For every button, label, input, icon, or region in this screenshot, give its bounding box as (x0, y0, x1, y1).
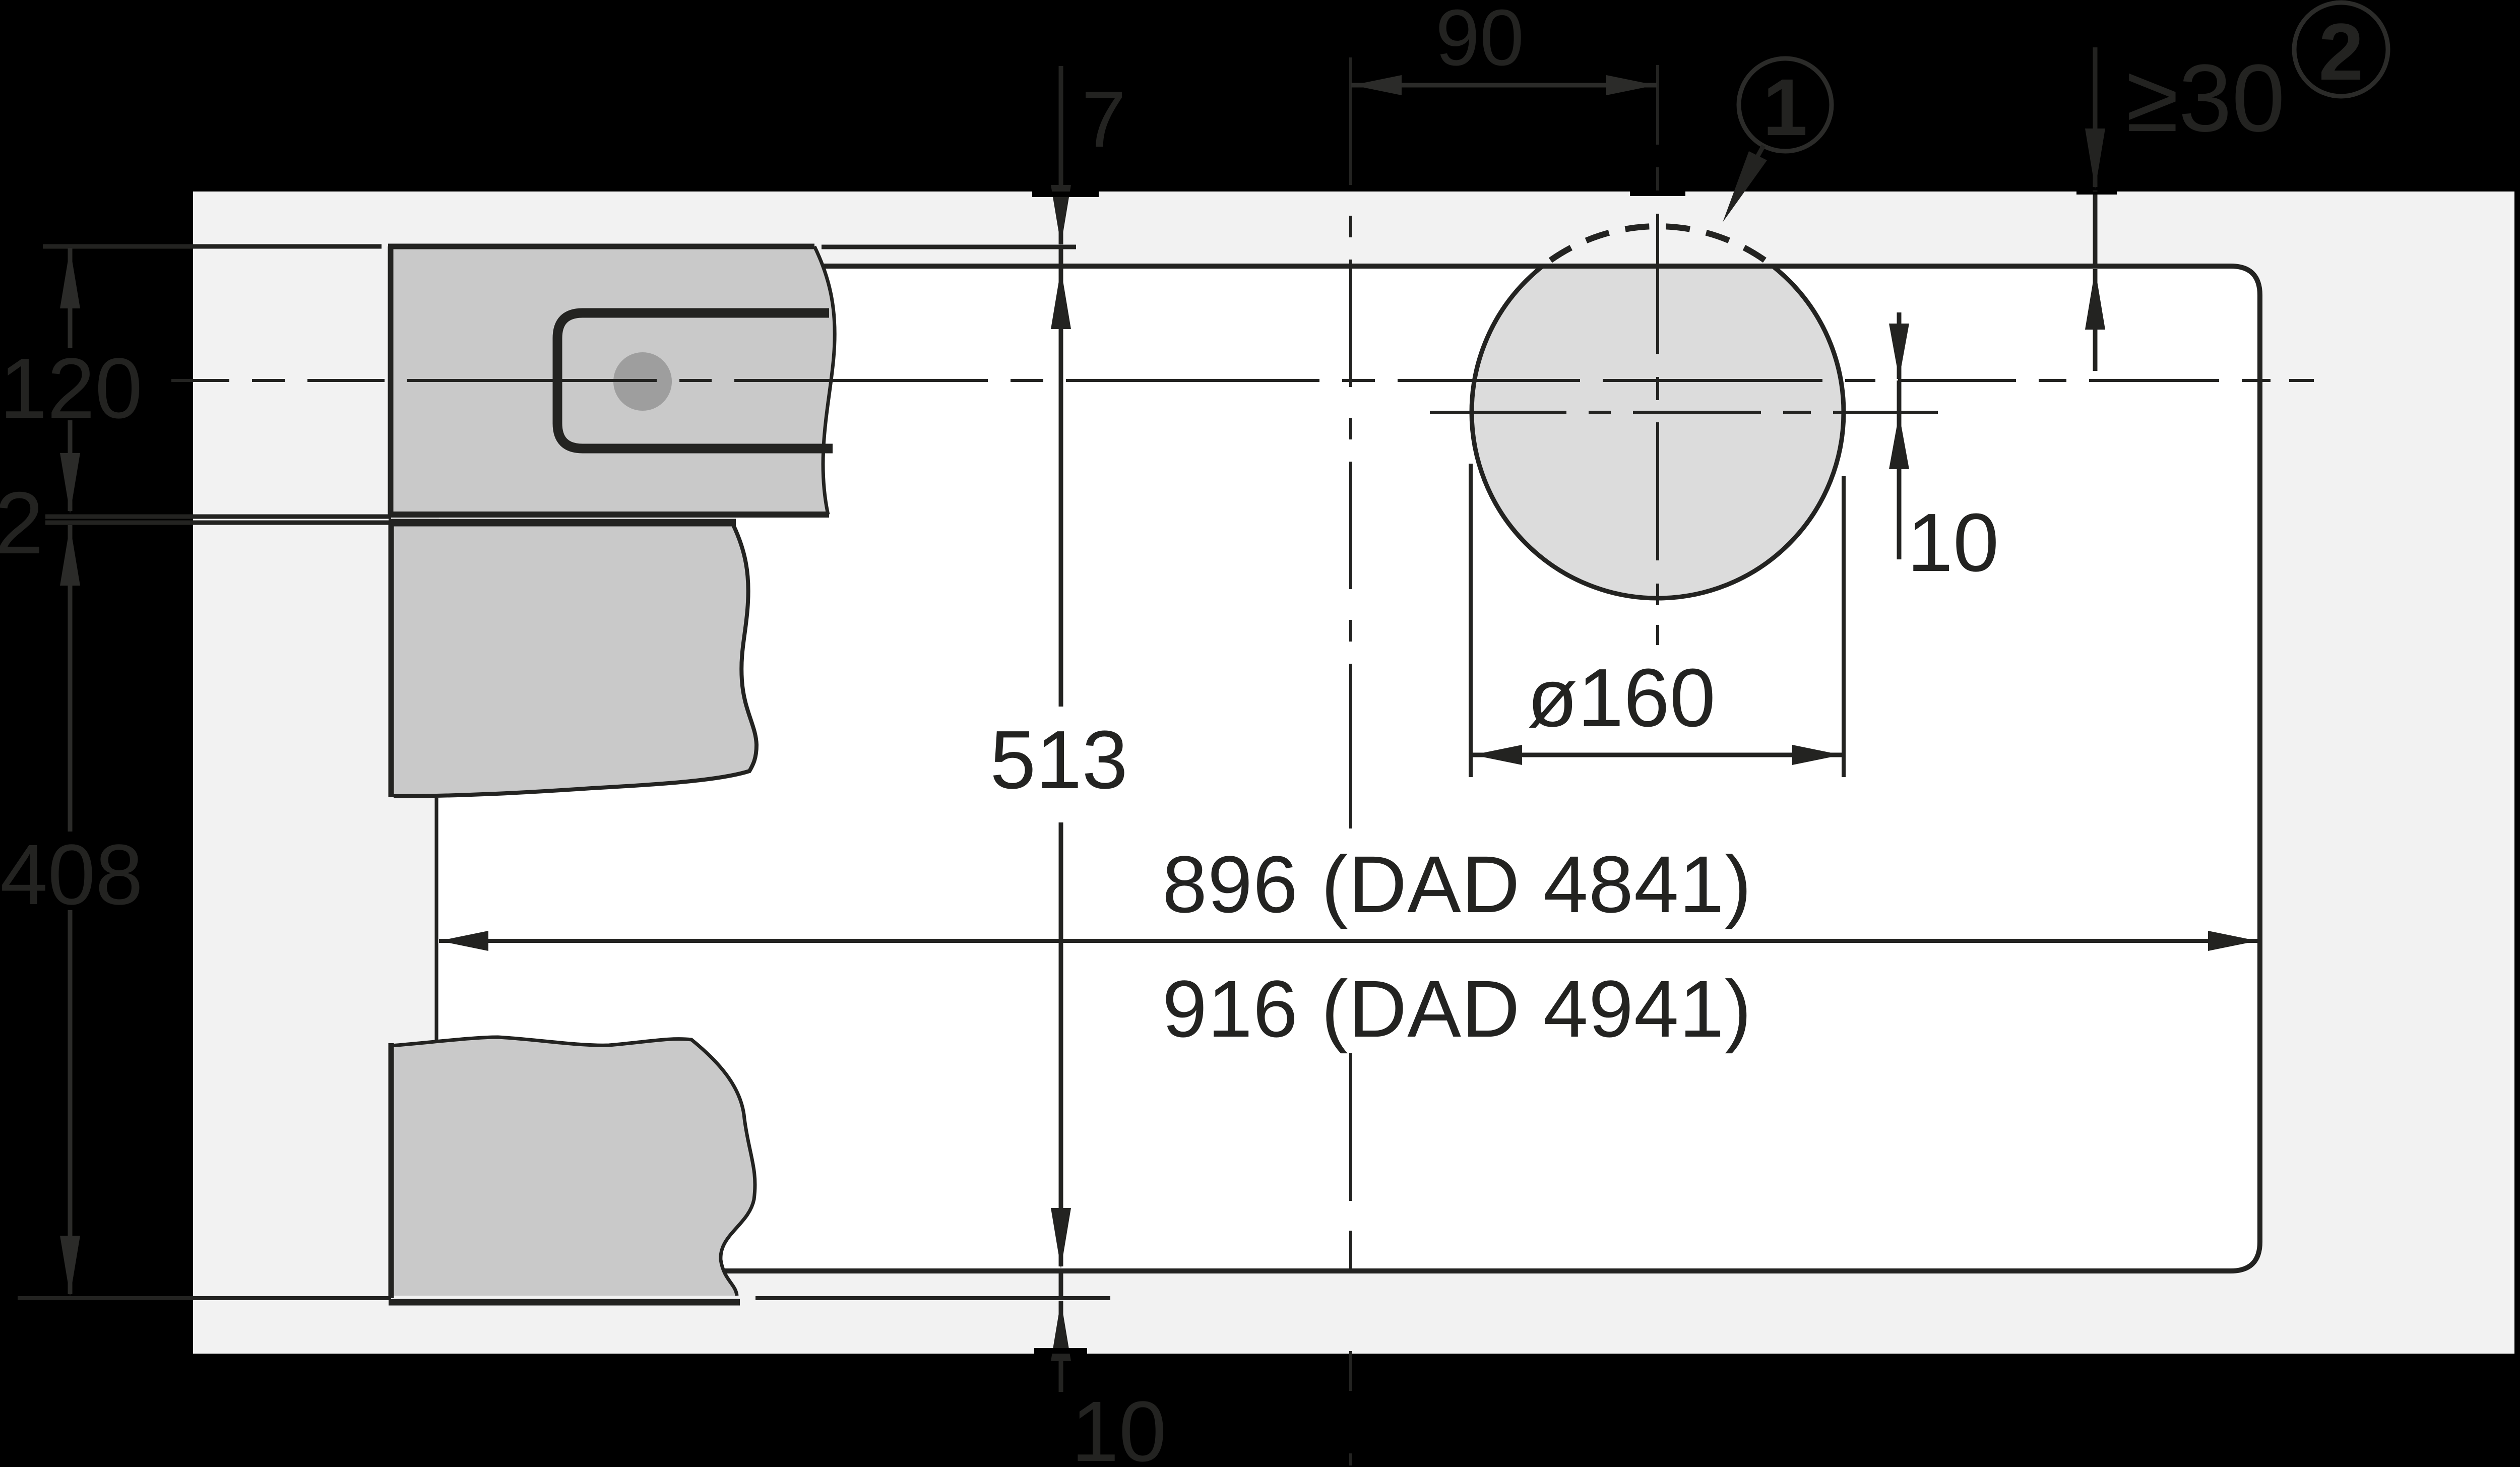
svg-text:2: 2 (2319, 7, 2364, 97)
svg-text:10: 10 (1907, 496, 1999, 589)
svg-text:513: 513 (990, 714, 1128, 806)
svg-text:120: 120 (0, 341, 143, 436)
svg-text:90: 90 (1435, 0, 1524, 82)
svg-text:1: 1 (1763, 62, 1808, 152)
svg-text:≥30: ≥30 (2126, 45, 2285, 152)
svg-text:2: 2 (0, 474, 44, 572)
svg-text:916 (DAD 4941): 916 (DAD 4941) (1162, 964, 1752, 1054)
svg-text:896 (DAD 4841): 896 (DAD 4841) (1162, 839, 1752, 929)
svg-text:ø160: ø160 (1527, 652, 1716, 744)
svg-text:408: 408 (0, 827, 143, 923)
svg-text:7: 7 (1082, 75, 1126, 164)
svg-text:10: 10 (1071, 1384, 1166, 1467)
